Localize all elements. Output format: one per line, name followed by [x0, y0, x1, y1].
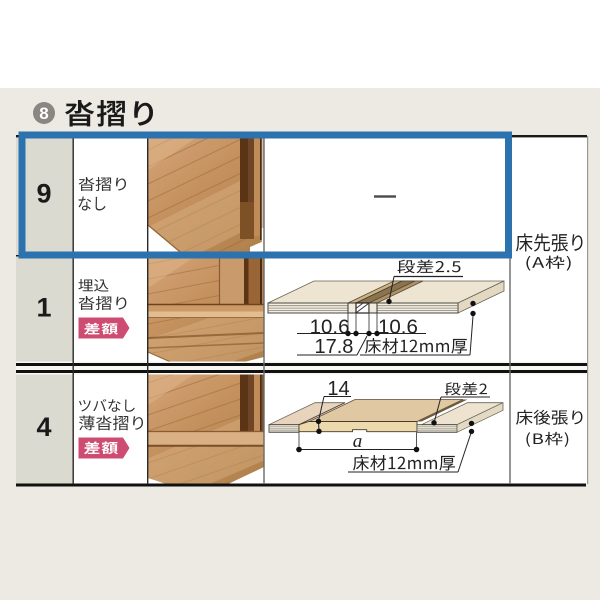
svg-text:4: 4: [36, 412, 51, 442]
svg-text:10.6: 10.6: [378, 315, 418, 338]
svg-text:1: 1: [36, 293, 51, 323]
svg-text:10.6: 10.6: [310, 315, 350, 338]
svg-text:8: 8: [39, 104, 48, 123]
svg-text:9: 9: [36, 179, 51, 209]
svg-text:a: a: [353, 431, 363, 452]
